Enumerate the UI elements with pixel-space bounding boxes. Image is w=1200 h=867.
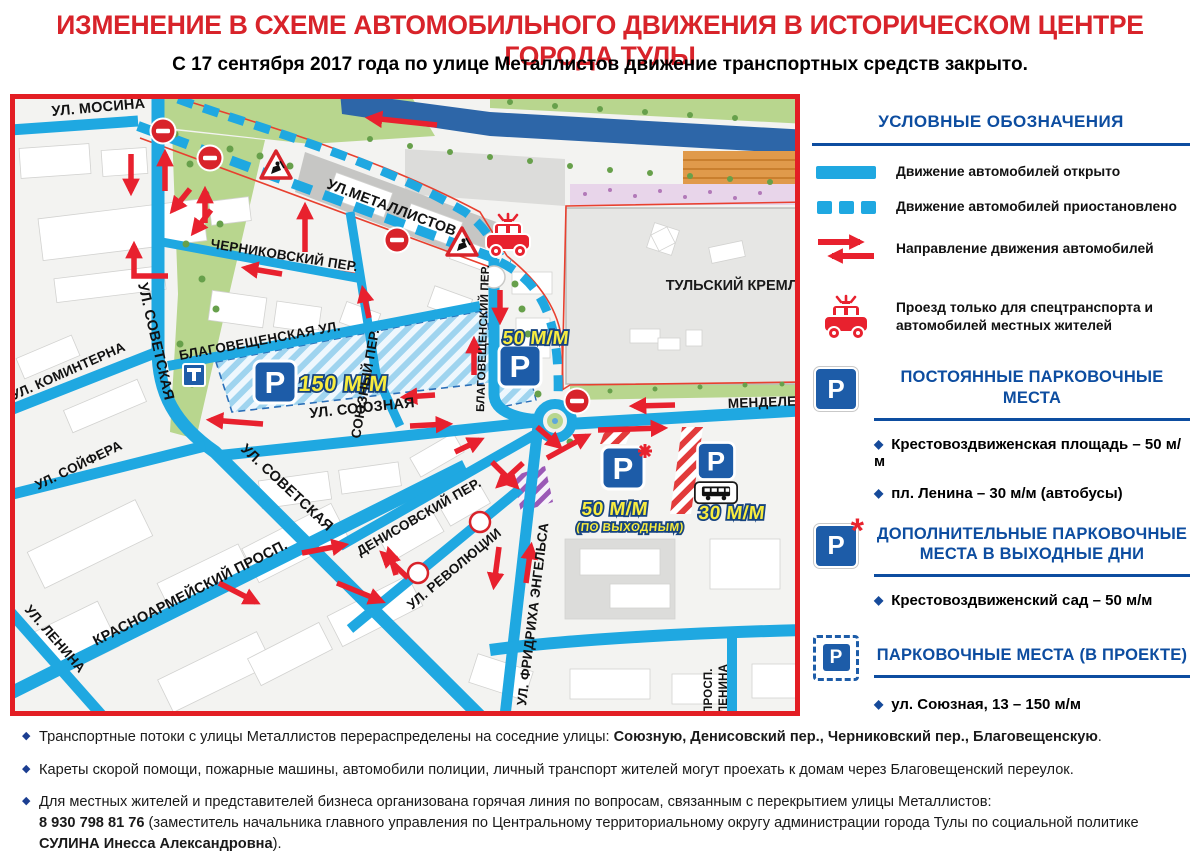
parking-capacity-50w-sub: (ПО ВЫХОДНЫМ) bbox=[576, 522, 685, 534]
parking-sign-50 bbox=[499, 345, 541, 387]
no-entry-sign bbox=[197, 145, 224, 172]
kremlin-label: ТУЛЬСКИЙ КРЕМЛЬ bbox=[666, 276, 800, 294]
footnotes: ◆Транспортные потоки с улицы Металлистов… bbox=[22, 727, 1190, 867]
street-label: ПРОСП. bbox=[703, 668, 715, 714]
note-emergency-access: ◆Кареты скорой помощи, пожарные машины, … bbox=[22, 760, 1190, 781]
legend-item-open: Движение автомобилей открыто bbox=[812, 163, 1190, 181]
section-project-parking: P ПАРКОВОЧНЫЕ МЕСТА (В ПРОЕКТЕ) bbox=[812, 635, 1190, 681]
note-redistribution: ◆Транспортные потоки с улицы Металлистов… bbox=[22, 727, 1190, 748]
parking-sign-150 bbox=[254, 361, 296, 403]
parking-capacity-30: 30 М/М bbox=[697, 503, 766, 524]
diamond-bullet-icon: ◆ bbox=[874, 486, 883, 500]
special-transport-car-icon bbox=[812, 291, 880, 343]
parking-sign-icon: P bbox=[812, 367, 860, 411]
legend-item-direction: Направление движения автомобилей bbox=[812, 233, 1190, 265]
parking-sign-50-weekend bbox=[602, 444, 652, 489]
two-way-arrows-icon bbox=[812, 233, 880, 265]
legend-item-label: Проезд только для спецтранспорта и автом… bbox=[896, 299, 1168, 335]
solid-blue-line-icon bbox=[812, 166, 880, 179]
no-entry-sign bbox=[564, 388, 591, 415]
legend-item-suspended: Движение автомобилей приостановлено bbox=[812, 198, 1190, 216]
dashed-blue-line-icon bbox=[812, 201, 880, 214]
section-title: ДОПОЛНИТЕЛЬНЫЕ ПАРКОВОЧНЫЕ МЕСТА В ВЫХОД… bbox=[874, 524, 1190, 577]
section-title: ПОСТОЯННЫЕ ПАРКОВОЧНЫЕ МЕСТА bbox=[874, 367, 1190, 420]
parking-sign-asterisk-icon: P * bbox=[812, 524, 860, 568]
note-hotline: ◆Для местных жителей и представителей би… bbox=[22, 792, 1190, 854]
sidebar: УСЛОВНЫЕ ОБОЗНАЧЕНИЯ Движение автомобиле… bbox=[812, 112, 1190, 728]
parking-item: ◆Крестовоздвиженская площадь – 50 м/м bbox=[874, 436, 1190, 470]
parking-capacity-150: 150 М/М bbox=[297, 371, 389, 396]
legend-item-special-transport: Проезд только для спецтранспорта и автом… bbox=[812, 291, 1190, 343]
parking-sign-dashed-icon: P bbox=[812, 635, 860, 681]
kremlin-area bbox=[566, 208, 800, 384]
legend-title: УСЛОВНЫЕ ОБОЗНАЧЕНИЯ bbox=[812, 112, 1190, 146]
section-title: ПАРКОВОЧНЫЕ МЕСТА (В ПРОЕКТЕ) bbox=[874, 635, 1190, 678]
dead-end-sign bbox=[183, 364, 205, 386]
parking-item: ◆ул. Союзная, 13 – 150 м/м bbox=[874, 696, 1190, 713]
legend-item-label: Движение автомобилей открыто bbox=[896, 163, 1120, 181]
section-weekend-parking: P * ДОПОЛНИТЕЛЬНЫЕ ПАРКОВОЧНЫЕ МЕСТА В В… bbox=[812, 524, 1190, 577]
no-entry-sign bbox=[384, 227, 411, 254]
parking-capacity-50w: 50 М/М bbox=[580, 499, 649, 520]
legend-item-label: Направление движения автомобилей bbox=[896, 240, 1154, 258]
section-permanent-parking: P ПОСТОЯННЫЕ ПАРКОВОЧНЫЕ МЕСТА bbox=[812, 367, 1190, 420]
page-subtitle: С 17 сентября 2017 года по улице Металли… bbox=[0, 54, 1200, 76]
street-label: ЛЕНИНА bbox=[718, 664, 730, 714]
parking-sign-30-bus bbox=[695, 443, 737, 504]
diamond-bullet-icon: ◆ bbox=[22, 762, 30, 778]
city-map: P bbox=[10, 94, 800, 716]
city-map-svg: P bbox=[10, 94, 800, 716]
no-entry-sign bbox=[150, 118, 177, 145]
parking-capacity-50: 50 М/М bbox=[501, 328, 570, 349]
diamond-bullet-icon: ◆ bbox=[22, 794, 30, 810]
diamond-bullet-icon: ◆ bbox=[874, 697, 883, 711]
red-rim-circle-sign bbox=[470, 512, 490, 532]
legend-item-label: Движение автомобилей приостановлено bbox=[896, 198, 1177, 216]
diamond-bullet-icon: ◆ bbox=[874, 593, 883, 607]
parking-item: ◆пл. Ленина – 30 м/м (автобусы) bbox=[874, 485, 1190, 502]
diamond-bullet-icon: ◆ bbox=[22, 729, 30, 745]
parking-item: ◆Крестовоздвиженский сад – 50 м/м bbox=[874, 592, 1190, 609]
street-label: МЕНДЕЛЕЕВ bbox=[728, 393, 800, 411]
red-rim-circle-sign bbox=[408, 563, 428, 583]
diamond-bullet-icon: ◆ bbox=[874, 437, 883, 451]
